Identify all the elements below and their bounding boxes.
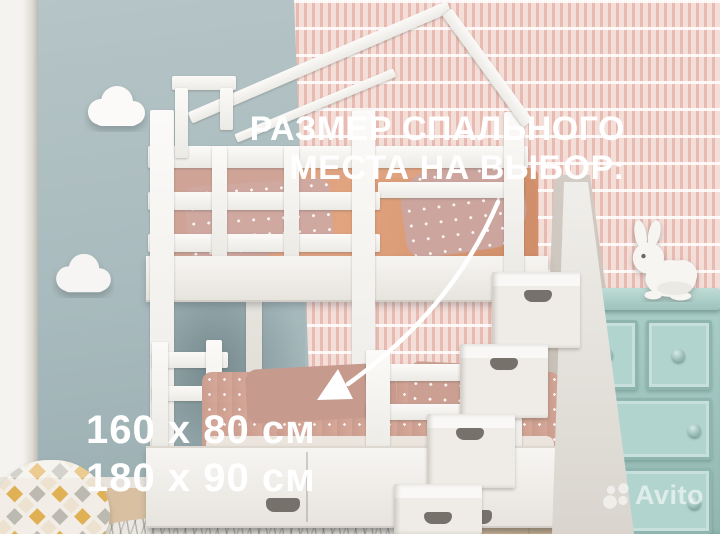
stair-step [394, 484, 482, 534]
step-handle [524, 290, 552, 302]
avito-watermark: Avito [602, 480, 704, 511]
product-photo-kids-bunk-bed: РАЗМЕР СПАЛЬНОГО МЕСТА НА ВЫБОР: 160 x 8… [0, 0, 720, 534]
avito-logo-icon [602, 482, 632, 509]
curtain-edge [0, 0, 38, 492]
avito-brand-text: Avito [635, 480, 704, 511]
step-handle [456, 428, 484, 440]
bunny-figurine [624, 216, 702, 302]
rail-slat [212, 146, 227, 258]
size-option-1: 160 x 80 см [86, 406, 316, 454]
ladder-stile [175, 88, 188, 158]
cloud-lamp-icon [84, 82, 148, 132]
step-handle [424, 512, 452, 524]
stair-step [427, 414, 515, 488]
size-options: 160 x 80 см 180 x 90 см [86, 406, 316, 502]
drawer-knob [672, 349, 685, 362]
ladder-stile [220, 88, 233, 130]
size-option-2: 180 x 90 см [86, 454, 316, 502]
cloud-lamp-icon [52, 250, 114, 298]
headline-line1: РАЗМЕР СПАЛЬНОГО [250, 110, 625, 149]
headline-line2: МЕСТА НА ВЫБОР: [250, 149, 625, 188]
drawer-knob [688, 424, 701, 437]
pointer-arrow-icon [300, 188, 520, 418]
headline: РАЗМЕР СПАЛЬНОГО МЕСТА НА ВЫБОР: [250, 110, 625, 188]
